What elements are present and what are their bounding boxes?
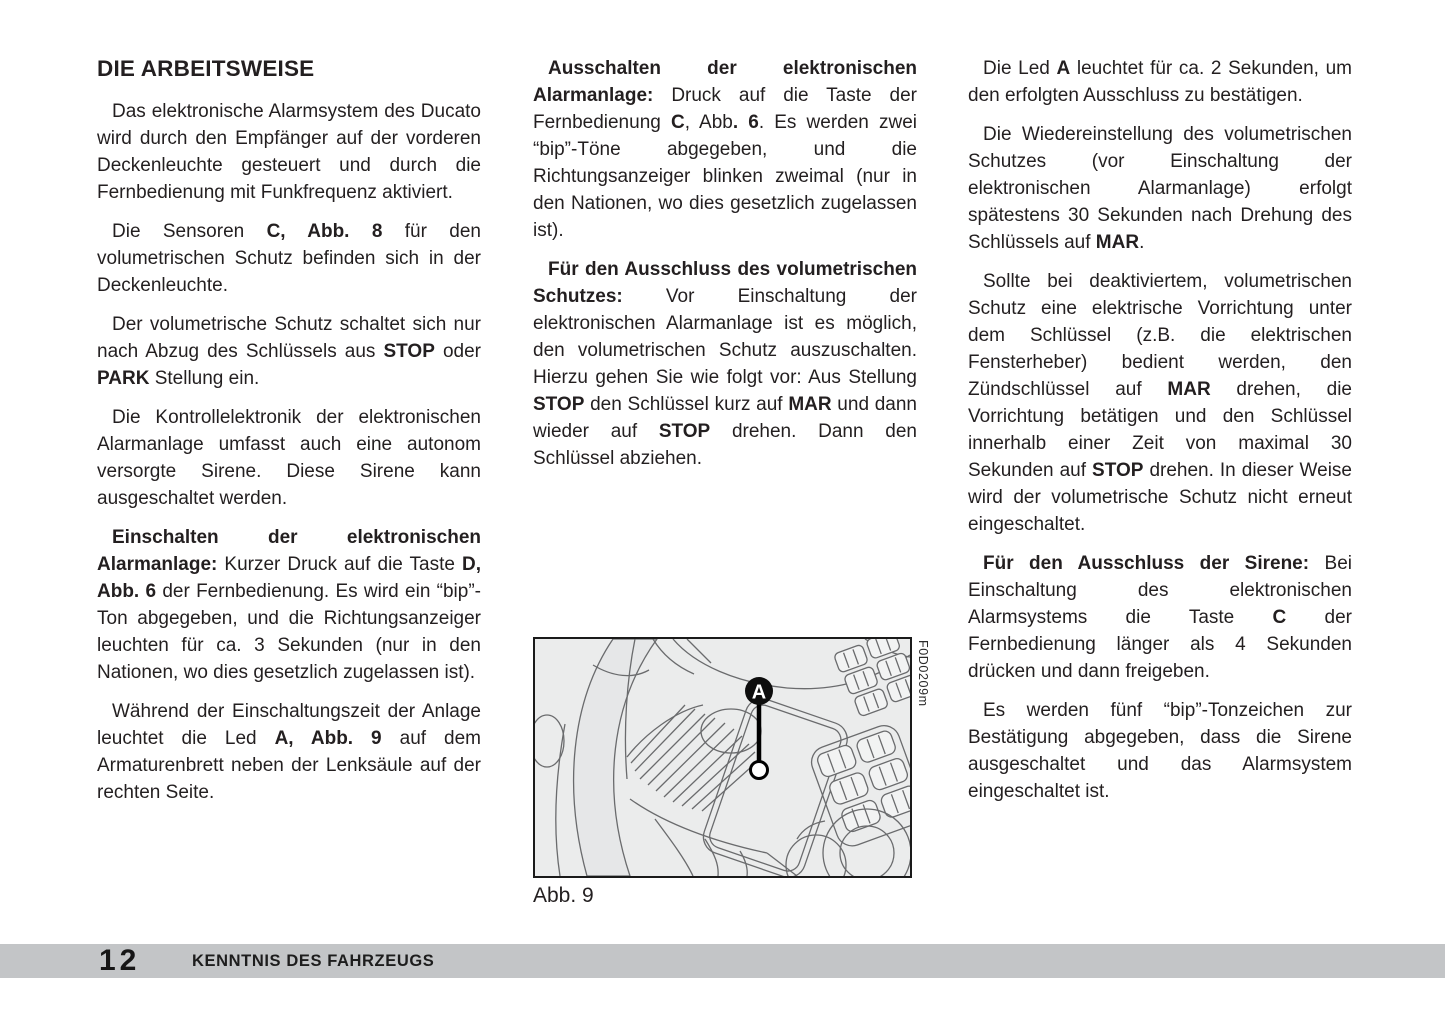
text: Kurzer Druck auf die Taste (217, 554, 462, 575)
marker-a-label: A (752, 682, 766, 704)
paragraph: Einschalten der elektronischen Alarmanla… (97, 524, 481, 686)
text: oder (435, 341, 481, 362)
footer-section-title: KENNTNIS DES FAHRZEUGS (192, 944, 434, 978)
bold-text: PARK (97, 368, 149, 389)
bold-text: STOP (533, 394, 584, 415)
column-right: Die Led A leuchtet für ca. 2 Sekunden, u… (968, 55, 1352, 817)
led-panel (699, 694, 852, 876)
paragraph: Es werden fünf “bip”-Tonzeichen zur Best… (968, 697, 1352, 805)
text: Die Wiedereinstellung des volumetrischen… (968, 124, 1352, 253)
paragraph: Für den Ausschluss der Sirene: Bei Einsc… (968, 550, 1352, 685)
led-indicator-circle (751, 762, 768, 779)
text: Es werden fünf “bip”-Tonzeichen zur Best… (968, 700, 1352, 802)
page-number: 12 (99, 944, 140, 978)
bold-text: STOP (659, 421, 710, 442)
bold-text: STOP (1092, 460, 1143, 481)
paragraph: Die Wiedereinstellung des volumetrischen… (968, 121, 1352, 256)
text: den Schlüssel kurz auf (584, 394, 788, 415)
manual-page: DIE ARBEITSWEISE Das elektronische Alarm… (0, 0, 1445, 1019)
bold-text: C (1273, 607, 1287, 628)
paragraph: Die Led A leuchtet für ca. 2 Sekunden, u… (968, 55, 1352, 109)
figure-abb-9: A (533, 637, 912, 878)
column-middle-paragraphs: Ausschalten der elektronischen Alarmanla… (533, 55, 917, 472)
paragraph: Ausschalten der elektronischen Alarmanla… (533, 55, 917, 244)
column-left: DIE ARBEITSWEISE Das elektronische Alarm… (97, 55, 481, 818)
bold-text: Für den Ausschluss der Sirene: (983, 553, 1309, 574)
bold-text: A, Abb. 9 (275, 728, 382, 749)
column-left-paragraphs: Das elektronische Alarmsystem des Ducato… (97, 98, 481, 806)
bold-text: A (1057, 58, 1071, 79)
dashboard-illustration: A (535, 639, 910, 876)
paragraph: Die Kontrollelektronik der elektronische… (97, 404, 481, 512)
section-heading: DIE ARBEITSWEISE (97, 55, 481, 83)
footer-bar: 12 KENNTNIS DES FAHRZEUGS (0, 944, 1445, 978)
bold-text: STOP (384, 341, 435, 362)
figure-code: F0D0209m (916, 640, 930, 707)
text: Die Kontrollelektronik der elektronische… (97, 407, 481, 509)
bold-text: . 6 (733, 112, 759, 133)
bold-text: C, Abb. 8 (267, 221, 383, 242)
text: Das elektronische Alarmsystem des Ducato… (97, 101, 481, 203)
paragraph: Für den Ausschluss des volumetrischen Sc… (533, 256, 917, 472)
bold-text: C (671, 112, 685, 133)
steering-column (535, 639, 657, 876)
figure-caption: Abb. 9 (533, 884, 594, 908)
marker-a: A (745, 677, 773, 779)
bold-text: MAR (1167, 379, 1210, 400)
column-middle: Ausschalten der elektronischen Alarmanla… (533, 55, 917, 484)
bold-text: MAR (788, 394, 831, 415)
paragraph: Die Sensoren C, Abb. 8 für den volumetri… (97, 218, 481, 299)
column-right-paragraphs: Die Led A leuchtet für ca. 2 Sekunden, u… (968, 55, 1352, 805)
text: Stellung ein. (149, 368, 259, 389)
paragraph: Der volumetrische Schutz schaltet sich n… (97, 311, 481, 392)
paragraph: Sollte bei deaktiviertem, volumetrischen… (968, 268, 1352, 538)
paragraph: Während der Einschaltungszeit der Anlage… (97, 698, 481, 806)
bold-text: MAR (1096, 232, 1139, 253)
text: Die Sensoren (112, 221, 267, 242)
paragraph: Das elektronische Alarmsystem des Ducato… (97, 98, 481, 206)
text: . (1139, 232, 1144, 253)
text: , Abb (685, 112, 733, 133)
text: Die Led (983, 58, 1057, 79)
